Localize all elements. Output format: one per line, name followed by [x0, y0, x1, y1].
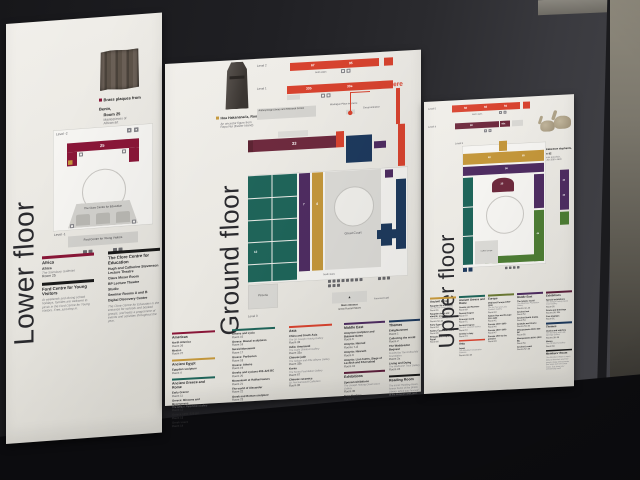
lower-floor-title: Lower floor — [10, 134, 38, 346]
africa-gallery-east-stub — [129, 147, 139, 162]
legend-entry: Greece: Minoans and MycenaeansThe Arthur… — [172, 397, 215, 412]
legend-entry: The Islamic worldThe Albukhary Foundatio… — [517, 299, 543, 310]
benin-plaque-photo — [100, 48, 139, 91]
facility-icon — [337, 279, 340, 282]
legend-entry: Sutton Hoo and Europe 300–1100Room 41 — [488, 313, 514, 322]
clore-centre-shape: The Clore Centre for Education — [68, 199, 138, 228]
facility-icon — [513, 266, 516, 269]
level2-asia-bar: 67 95 — [290, 58, 379, 71]
ground-floor-map: 33 12 7 4 — [248, 123, 413, 321]
montague-place-entrance-label: Montague Place entrance — [330, 102, 359, 106]
egyptian-sculpture-strip: 4 — [312, 172, 323, 271]
legend-section-asia: Asia JapanThe Mitsubishi Corporation Gal… — [459, 339, 485, 357]
museum-wall-map-photo: Lower floor Brass plaques from Benin, Ro… — [0, 0, 640, 480]
level1-grey-block — [287, 94, 300, 100]
level-5-label: Level 5 — [428, 107, 436, 110]
legend-entry: Ethiopia and Coptic EgyptRoom 66 — [430, 334, 456, 343]
reading-room-circle — [334, 185, 374, 227]
legend-section-greece-rome-cont: Athens and LyciaRoom 15Greece: Bassai sc… — [232, 327, 275, 402]
facility-icon — [383, 277, 386, 280]
facility-icon — [360, 278, 363, 281]
level5-japan-bar: 92 93 94 — [452, 102, 520, 113]
legend-entry: Greek vasesRoom 14 — [172, 419, 215, 428]
legend-entry: Egyptian life and deathThe Michael Cohen… — [430, 303, 456, 312]
themes-cross-arm — [377, 229, 396, 239]
legend-entry: Assyria: Lion hunts, Siege of Lachish an… — [344, 357, 385, 369]
legend-entry: The Members' Room is open daily to Membe… — [546, 355, 572, 370]
level2-north-stairs-block — [384, 57, 393, 66]
legend-entry: Mesopotamia 6000–1500 BCRoom 56 — [517, 336, 543, 345]
legend-section-europe: Europe Medieval Europe 1050–1500The Sir … — [488, 293, 514, 343]
legend-entry: AfricaThe Sainsbury GalleriesRoom 25 — [42, 263, 94, 279]
kakiemon-elephants-photo — [539, 108, 571, 140]
room35-exhibition-block: 35 — [492, 177, 514, 192]
level-minus1-label: Level -1 — [54, 233, 66, 237]
legend-entry: Clocks and watchesThe Sir Harry and Lady… — [546, 328, 572, 339]
facility-icon — [378, 277, 381, 280]
level-1-label: Level 1 — [257, 87, 267, 91]
europe-east-block — [560, 211, 569, 224]
legend-entry: Greek and Roman sculptureRoom 23 — [232, 393, 275, 402]
north-link-red-line — [396, 88, 400, 124]
egypt-north-stub — [499, 141, 507, 151]
greece-rome-west-column — [463, 177, 473, 265]
lift-icon — [132, 219, 136, 223]
pizzeria-block: Pizzeria — [248, 284, 278, 310]
legend-section-asia: Asia China and South AsiaThe Sir Joseph … — [289, 324, 332, 388]
level4-prints-bar: 90 — [455, 121, 499, 129]
stairs-icon — [122, 149, 126, 153]
middle-east-east-column — [534, 174, 544, 209]
ford-centre-shape: Ford Centre for Young Visitors — [68, 231, 138, 247]
north-stairs-red-block — [336, 131, 344, 147]
north-stairs-label: North stairs — [315, 70, 327, 73]
lift-icon — [321, 94, 325, 98]
lower-highlight-caption: Brass plaques from Benin, Room 25 Master… — [99, 91, 154, 126]
legend-entry: The Waddesdon BequestFunded by The Roths… — [389, 343, 420, 361]
legend-section-reading-room: Reading Room The iconic Reading Room, fo… — [389, 374, 420, 397]
lecture-theatre-shape — [116, 211, 130, 223]
great-court-label: Great Court — [325, 230, 381, 237]
assyria-strip: 7 — [299, 173, 310, 272]
clocks-room-block — [469, 267, 473, 271]
level4-grey-block — [512, 120, 523, 127]
facility-icon — [333, 279, 336, 282]
facility-icon — [328, 280, 331, 283]
legend-entry: Free displaysRoom 91 — [546, 314, 572, 320]
facility-icon — [337, 284, 340, 287]
lower-floor-map: Level -2 25 The Clore Centre for Educati… — [53, 123, 153, 259]
stairs-icon — [327, 93, 331, 97]
greece-west-wing: 12 — [248, 174, 297, 283]
elephant-figure — [554, 115, 571, 129]
legend-entry: MoneyThe Citi Money GalleryRoom 68 — [546, 339, 572, 348]
stairs-icon — [134, 127, 139, 132]
anthropology-library-block: Anthropology Library and Research Centre — [257, 106, 316, 120]
entrance-arrow-icon: ▲ — [348, 296, 351, 300]
legend-entry: Mesopotamia 1500–539 BCRoom 55 — [517, 327, 543, 336]
clocks-room-block — [463, 268, 467, 272]
highlight-bullet — [216, 116, 219, 119]
legend-section-themes: Themes EnlightenmentRoom 1Collecting the… — [389, 319, 420, 372]
legend-entry: Egyptian death and afterlife: mummiesThe… — [430, 312, 456, 323]
facility-icon — [355, 278, 358, 281]
legend-entry: The Clore Centre for Education is the en… — [108, 301, 160, 323]
facility-icon — [328, 284, 331, 287]
legend-entry: Ancient LevantRooms 57–59 — [517, 344, 543, 350]
legend-section-themes: Themes Clocks and watchesThe Sir Harry a… — [546, 321, 572, 347]
legend-section-americas: Americas North AmericaRoom 26MexicoRoom … — [172, 330, 215, 356]
highlight-bullet — [99, 98, 102, 101]
level4-room90a-block: 90a — [500, 120, 510, 127]
legend-section-middle-east: Middle East The Islamic worldThe Albukha… — [517, 292, 543, 351]
forecourt-cafe-label: Forecourt Café — [374, 296, 394, 300]
level-2-label: Level 2 — [257, 64, 267, 68]
upper-floor-map: Level 3 62 65 56 46 — [455, 137, 563, 279]
lift-icon — [127, 128, 132, 133]
legend-entry: JapanThe Mitsubishi Corporation Gallerie… — [459, 346, 485, 357]
facility-icon — [509, 266, 512, 269]
legend-entry: Special exhibitionsThe Joseph Hotung Gre… — [344, 379, 385, 394]
you-are-here-leader-line — [350, 92, 351, 111]
facility-icon — [387, 276, 390, 279]
level-0-label: Level 0 — [248, 315, 258, 319]
lift-icon — [484, 129, 487, 132]
africa-room25a-block — [68, 160, 73, 165]
enlightenment-room1-strip — [396, 179, 406, 250]
you-are-here-leader-line — [350, 91, 370, 93]
themes-north-block — [346, 134, 372, 162]
legend-section-ford-centre: Ford Centre for Young Visitors At weeken… — [42, 279, 94, 313]
lift-icon — [499, 111, 502, 114]
facility-icon — [346, 279, 349, 282]
stairs-icon — [347, 69, 351, 73]
legend-section-exhibitions: Exhibitions Special exhibitionsThe Josep… — [546, 290, 572, 320]
legend-section-africa: Africa AfricaThe Sainsbury GalleriesRoom… — [42, 253, 94, 280]
lift-icon — [70, 224, 74, 228]
coffee-lounge-block: Coffee lounge — [475, 240, 498, 264]
facility-icon — [517, 266, 520, 269]
facility-icon — [505, 267, 508, 270]
legend-section-ancient-egypt: Ancient Egypt Egyptian life and deathThe… — [430, 296, 456, 343]
level-3-label: Level 3 — [455, 142, 463, 145]
stairs-icon — [489, 129, 492, 132]
great-court: Great Court — [325, 169, 381, 270]
legend-entry: Europe 1900 to the presentRoom 48 — [488, 334, 514, 343]
legend-entry: Medieval Europe 1050–1500The Sir Paul an… — [488, 300, 514, 313]
panel-ground-floor: Ground floor Hoa Hakananai'a, Room 24 An… — [165, 50, 421, 406]
ford-centre-label: Ford Centre for Young Visitors — [68, 235, 138, 243]
legend-entry: The iconic Reading Room, former home of … — [389, 383, 420, 397]
legend-entry: Living and DyingThe Wellcome Trust Galle… — [389, 361, 420, 372]
panel-upper-floor: Upper floor The Kakiemon elephants, Room… — [424, 94, 574, 394]
lift-icon — [341, 69, 345, 73]
middle-east-north-block — [374, 141, 386, 149]
facility-icon — [342, 279, 345, 282]
legend-section-middle-east: Middle East Assyrian sculpture and Balaw… — [344, 321, 385, 369]
ground-floor-title: Ground floor — [217, 155, 243, 336]
legend-entry: Assyrian sculpture and Balawat GatesRoom… — [344, 330, 385, 342]
room33-asia-gallery: 33 — [253, 135, 336, 152]
legend-entry: MexicoRoom 27 — [172, 347, 215, 356]
facility-icon — [333, 284, 336, 287]
elephant-figure — [540, 120, 554, 132]
legend-entry: At weekends and during school holidays, … — [42, 295, 94, 314]
level5-stairs-block — [523, 101, 530, 108]
legend-section-members-room: Members' Room The Members' Room is open … — [546, 349, 572, 371]
stairs-icon — [504, 111, 507, 114]
legend-section-exhibitions: Exhibitions Special exhibitionsThe Josep… — [344, 370, 385, 402]
facility-icon — [351, 278, 354, 281]
panel-lower-floor: Lower floor Brass plaques from Benin, Ro… — [6, 13, 162, 444]
moai-statue-photo — [224, 61, 250, 109]
legend-entry: Special exhibitionsThe Joseph Hotung Gre… — [546, 297, 572, 308]
level-4-label: Level 4 — [428, 125, 436, 128]
you-are-here-dot — [348, 111, 353, 116]
legend-section-greece-rome: Ancient Greece and Rome Greeks and Roman… — [459, 295, 485, 338]
legend-entry: Greeks in ItalyRoom 73 — [459, 331, 485, 337]
legend-section-ancient-egypt: Ancient Egypt Egyptian sculptureRoom 4 — [172, 357, 215, 375]
legend-section-clore-centre: The Clore Centre for Education Hugh and … — [108, 248, 160, 324]
main-entrance-hall: ▲ — [332, 291, 367, 304]
legend-entry: Egyptian sculptureRoom 4 — [172, 366, 215, 375]
legend-entry: Chinese ceramicsSir Percival David Colle… — [289, 376, 332, 388]
group-entrance-label: Group entrance — [363, 106, 388, 110]
legend-section-greece-rome: Ancient Greece and Rome Early GreeceRoom… — [172, 376, 215, 428]
north-stairs-label: North stairs — [472, 112, 482, 115]
lecture-theatre-shape — [76, 214, 90, 226]
islamic-world-rooms-4243: 42 43 — [560, 169, 569, 209]
middle-east-east-block — [385, 169, 393, 177]
lecture-theatre-shape — [96, 212, 110, 224]
stairs-icon — [79, 152, 83, 156]
legend-entry: Free displaysRoom 3 — [344, 393, 385, 402]
legend-entry: Ancient CyprusThe A.G. Leventis GalleryR… — [459, 323, 485, 332]
asia-east-link — [398, 124, 405, 166]
